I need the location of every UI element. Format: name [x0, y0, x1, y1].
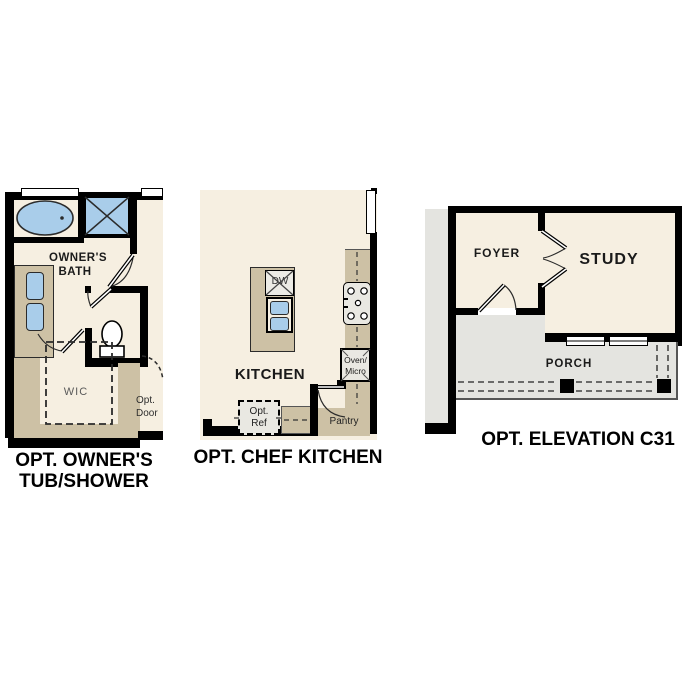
bath-left-wall	[5, 192, 14, 438]
plan-bottom-wall-right	[138, 431, 163, 440]
vanity-sink-1	[26, 272, 44, 300]
foyer-label: FOYER	[474, 246, 520, 260]
bath-window	[21, 188, 79, 197]
tub-shower-caption-line2: TUB/SHOWER	[15, 471, 153, 492]
porch-slab-left	[456, 315, 545, 400]
study-floor	[538, 213, 675, 333]
pantry-left-wall	[310, 384, 318, 436]
wic-bottom-wall-band	[14, 424, 140, 438]
pantry-label: Pantry	[330, 416, 359, 427]
garage-side-band	[425, 209, 450, 431]
opt-door-label: Opt. Door	[136, 395, 158, 420]
bath-right-wall-upper	[130, 196, 137, 254]
bath-window-2	[141, 188, 163, 197]
elevation-caption: OPT. ELEVATION C31	[481, 429, 675, 450]
tub-shower-caption: OPT. OWNER'S TUB/SHOWER	[15, 450, 153, 492]
kitchen-label: KITCHEN	[235, 366, 305, 383]
opt-door-label-line1: Opt.	[136, 395, 158, 408]
wc-top-wall	[110, 286, 148, 293]
owners-bath-label-line2: BATH	[58, 266, 91, 278]
elevation-left-wall	[448, 206, 456, 427]
kitchen-counter-bottom	[281, 406, 312, 434]
tub-front-wall	[5, 237, 84, 243]
oven-micro-label-line1: Oven/	[342, 355, 369, 366]
foyer-bottom-wall-left	[448, 308, 478, 315]
study-label: STUDY	[579, 251, 638, 269]
sink-basin-1	[270, 301, 289, 315]
opt-ref-label-line1: Opt.	[240, 406, 278, 418]
opt-refrigerator: Opt. Ref	[238, 400, 280, 435]
oven-micro-cabinet: Oven/ Micro	[340, 348, 371, 382]
foyer-floor	[456, 213, 545, 308]
chef-kitchen-caption: OPT. CHEF KITCHEN	[194, 447, 383, 468]
wic-label: WIC	[64, 386, 88, 398]
porch-post-1	[560, 379, 574, 393]
pantry-door-jamb	[337, 380, 346, 389]
vanity-sink-2	[26, 303, 44, 331]
foyer-bottom-wall-right	[516, 308, 545, 315]
porch-label: PORCH	[546, 358, 593, 370]
oven-micro-label-line2: Micro	[342, 366, 369, 377]
kitchen-right-wall	[370, 232, 377, 434]
opt-ref-label-line2: Ref	[240, 418, 278, 430]
porch-edge-bottom	[456, 398, 678, 400]
cooktop	[343, 282, 371, 325]
wc-top-wall-stub	[85, 286, 91, 293]
owners-bath-label-line1: OWNER'S	[49, 252, 107, 264]
porch-post-2	[657, 379, 671, 393]
kitchen-counter-right	[345, 249, 370, 434]
floorplan-sheet: OWNER'S BATH WIC Opt. Door OPT. OWNER'S …	[0, 0, 687, 687]
porch-edge-right	[676, 342, 678, 400]
shower-pan	[84, 196, 130, 236]
sink-basin-2	[270, 317, 289, 331]
elevation-right-wall	[675, 206, 682, 346]
kitchen-window	[366, 190, 376, 234]
opt-door-label-line2: Door	[136, 408, 158, 421]
tub-shower-caption-line1: OPT. OWNER'S	[15, 450, 153, 471]
elevation-top-wall	[448, 206, 682, 213]
study-window-1	[566, 336, 605, 346]
shower-curb-line	[84, 236, 130, 238]
plan-bottom-wall	[8, 438, 140, 448]
study-window-2	[609, 336, 648, 346]
dishwasher-label: DW	[272, 276, 289, 287]
wc-right-wall	[140, 293, 148, 367]
foyer-study-wall-upper	[538, 213, 545, 231]
wc-left-wall	[85, 328, 92, 358]
